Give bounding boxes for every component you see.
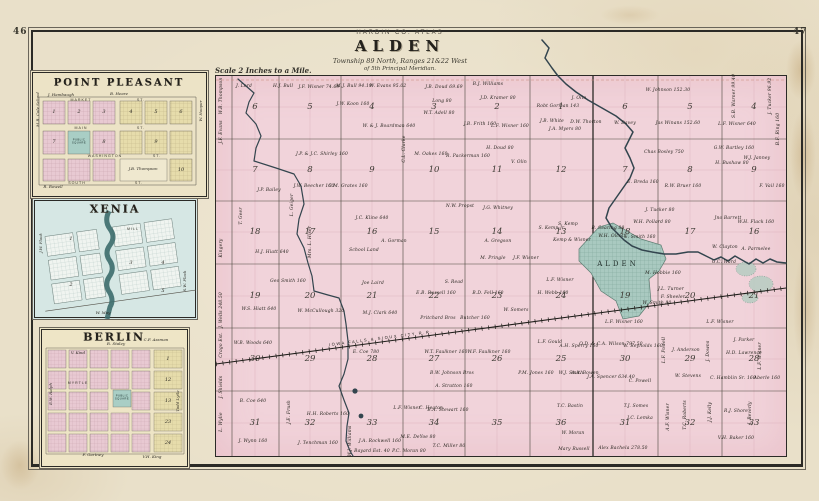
section-number: 5 [687, 103, 692, 112]
owner-label: W.F. Faulkner 160 [467, 351, 510, 355]
section-number: 32 [685, 419, 696, 428]
owner-label: J.P. & J.C. Shirley 160 [296, 153, 348, 157]
edge-owner-label: W.B. Thompson [220, 78, 224, 115]
section-number: 33 [367, 419, 378, 428]
owner-label: J.B. Doud 69.69 [425, 86, 463, 90]
owner-label: A.F. Wisner [667, 403, 671, 431]
section-number: 35 [492, 419, 503, 428]
inset-label: MARKET [71, 98, 92, 102]
owner-label: W.B. Woods 640 [234, 342, 272, 346]
inset-label: 3 [129, 260, 132, 266]
inset-label: W. Hooper [199, 100, 203, 121]
owner-label: L. Geiger [291, 194, 295, 217]
inset-label: ST. [153, 154, 161, 158]
owner-label: L.F. Wisner 640 [718, 123, 756, 127]
inset-labels-layer: C.F. AssmanR. StaleyV. KindE.W. RalphTod… [40, 328, 189, 468]
section-number: 10 [429, 166, 440, 175]
section-number: 3 [431, 103, 436, 112]
owner-label: W. Smith 80 [643, 302, 672, 306]
owner-label: G.C. Ward [712, 261, 736, 265]
section-number: 4 [751, 103, 756, 112]
owner-label: J. Tucker 96.92 [769, 78, 773, 115]
section-number: 22 [429, 292, 440, 301]
inset-label: MYRTLE [68, 381, 89, 385]
owner-label: A. Gorman [381, 240, 407, 244]
paper-stain [600, 5, 660, 25]
owner-label: J. Lord [236, 85, 252, 89]
inset-label: 1 [166, 356, 169, 362]
owner-label: L.F. Wisner 160 [491, 125, 529, 129]
section-number: 36 [556, 419, 567, 428]
inset-label: 10 [178, 167, 184, 173]
owner-label: A. Gregson [485, 240, 512, 244]
owner-label: J.B. White [540, 120, 564, 124]
edge-owner-label: Crago Est. [220, 332, 224, 358]
owner-label: G.W. Bartley 160 [714, 147, 754, 151]
owner-label: R.J. Shore [724, 410, 748, 414]
owner-label: Pritchard Bros [420, 317, 455, 321]
owner-label: W. Johnson 152.30 [646, 89, 690, 93]
owner-label: L.F. Wisner [393, 407, 420, 411]
inset-labels-layer: J.W. FlackW. MayS.W. FlackMILL12345 [33, 199, 197, 319]
owner-label: M.J. Clark 640 [363, 312, 398, 316]
edge-owner-label: Kingery [220, 239, 224, 258]
section-number: 13 [556, 228, 567, 237]
owner-label: L.F. Wisner [706, 321, 733, 325]
owner-label: L.F. Wisner 160 [605, 321, 643, 325]
owner-label: W.S. Hiatt 640 [242, 308, 277, 312]
meridian-line: of 5th Principal Meridian. [300, 66, 500, 72]
owner-label: W. Stevens [675, 375, 701, 379]
township-line: Township 89 North, Ranges 21&22 West [300, 57, 500, 65]
owner-label: Butcher 160 [460, 317, 490, 321]
owner-label: W. & J. Boardman 640 [363, 125, 416, 129]
inset-label: 6 [179, 109, 182, 115]
section-number: 6 [622, 103, 627, 112]
owner-label: B.J. Williams [473, 83, 504, 87]
owner-label: J. Parker [734, 339, 755, 343]
owner-label: J.F. Wisner 74.69 [299, 86, 340, 90]
section-number: 7 [252, 166, 257, 175]
section-number: 19 [250, 292, 261, 301]
owner-label: J. Tenchman 160 [298, 442, 338, 446]
owner-label: H.J. Bull [273, 85, 293, 89]
owner-label: E. Breda 160 [627, 181, 659, 185]
township-map: ALDEN IOWA FALLS & SIOUX CITY R.R. J. Lo… [215, 75, 787, 457]
section-number: 1 [558, 103, 563, 112]
section-number: 23 [492, 292, 503, 301]
owner-label: W.J. Janney [744, 157, 771, 161]
inset-label: Todd Lytle [176, 390, 180, 411]
edge-owner-label: J. Wells 248.50 [220, 292, 224, 328]
owner-label: B.F. Ring 160 [777, 113, 781, 146]
owner-label: V. Olin [511, 161, 527, 165]
title-block: HARDIN CO. ATLAS ALDEN Township 89 North… [300, 30, 500, 72]
section-number: 4 [369, 103, 374, 112]
inset-label: 23 [165, 419, 171, 425]
map-title: ALDEN [300, 37, 500, 55]
inset-label: 13 [165, 398, 171, 404]
owner-label: J.A. Spencer 634.40 [587, 376, 635, 380]
owner-label: B.W. Johnson Bros [430, 372, 474, 376]
inset-label: 2 [69, 282, 72, 288]
owner-label: J.L. Turner [658, 288, 684, 292]
owner-label: Alex Bachela 278.50 [598, 447, 647, 451]
section-number: 2 [494, 103, 499, 112]
section-number: 17 [685, 228, 696, 237]
owner-label: S.B. Warner 99.40 [733, 74, 737, 118]
owner-label: A.A. Bowen [571, 372, 599, 376]
owner-label: J. Anderson [672, 349, 700, 353]
section-number: 31 [250, 419, 261, 428]
section-number: 20 [305, 292, 316, 301]
owner-label: C.L. Clarke [403, 135, 407, 162]
owner-label: F. Vail 160 [759, 185, 784, 189]
owner-label: P.M. Jones 160 [518, 372, 553, 376]
owner-label: M. Pringle [480, 257, 505, 261]
owner-label: B.A. Stewart 160 [427, 409, 468, 413]
owner-label: W. McCullough 320 [298, 310, 345, 314]
section-number: 18 [620, 228, 631, 237]
section-number: 19 [620, 292, 631, 301]
owner-label: A. Stratton 160 [435, 385, 472, 389]
owner-label: W. Moran [562, 432, 585, 436]
map-labels-layer: J. LordH.J. BullJ.F. Wisner 74.69M.J. Bu… [216, 76, 786, 456]
section-number: 29 [685, 355, 696, 364]
inset-label: ST. [137, 98, 145, 102]
edge-owner-label: J. Shields [220, 376, 224, 399]
inset-label: W. May [96, 311, 111, 315]
inset-label: J.B. Thompson [128, 167, 157, 171]
section-number: 20 [685, 292, 696, 301]
owner-label: J.W. Koon 160 [336, 103, 369, 107]
atlas-page: 46 47 HARDIN CO. ATLAS ALDEN Township 89… [0, 0, 819, 501]
section-number: 8 [307, 166, 312, 175]
section-number: 18 [250, 228, 261, 237]
section-number: 16 [367, 228, 378, 237]
owner-label: W.J. Williams [349, 425, 353, 456]
inset-label: 24 [165, 440, 171, 446]
inset-label: SOUTH [68, 181, 86, 185]
inset-label: 5 [161, 288, 164, 294]
owner-label: D.W. Thorton [570, 121, 601, 125]
owner-label: J. Olin [572, 97, 587, 101]
owner-label: Bayard Est. 40 [354, 450, 390, 454]
section-number: 21 [367, 292, 378, 301]
owner-label: Geo Smith 160 [270, 280, 306, 284]
owner-label: J.E. Frush [288, 400, 292, 424]
owner-label: N.W. Propst [446, 205, 474, 209]
owner-label: W. Evans 95.02 [370, 85, 407, 89]
section-number: 12 [556, 166, 567, 175]
owner-label: W. Reynolds 160 [623, 345, 663, 349]
section-number: 15 [429, 228, 440, 237]
owner-label: H. Bushaw 80 [715, 162, 749, 166]
owner-label: J.C. Lemka [627, 417, 653, 421]
owner-label: J.G. Whitney [483, 207, 513, 211]
owner-label: J.F. Wisner [513, 257, 539, 261]
owner-label: S. Read [445, 281, 463, 285]
inset-label: J. Hambaugh [48, 93, 74, 97]
inset-point-pleasant: POINT PLEASANT PUBLIC SQUARE J. Hambaugh… [30, 70, 209, 199]
inset-label: B. Heare [110, 92, 128, 96]
owner-label: M. Hobbie 160 [645, 272, 681, 276]
owner-label: H. Doud 80 [486, 147, 513, 151]
page-number-left: 46 [13, 27, 28, 37]
edge-owner-label: L. Wylie [220, 412, 224, 432]
owner-label: C. Powell [629, 380, 651, 384]
owner-label: J.C. Kline 640 [356, 217, 389, 221]
inset-label: WASHINGTON [88, 154, 123, 158]
section-number: 7 [622, 166, 627, 175]
owner-label: Chas Bosley 750 [644, 151, 684, 155]
section-number: 17 [305, 228, 316, 237]
owner-label: M. Oakes 160 [414, 153, 447, 157]
section-number: 33 [749, 419, 760, 428]
inset-labels-layer: J. HambaughB. HeareR. RowellM.B. ColeSch… [31, 71, 208, 198]
owner-label: L.F. Wisner [546, 279, 573, 283]
inset-label: F. Gartney [83, 453, 104, 457]
owner-label: A. Parmelee [742, 248, 771, 252]
inset-label: ST. [135, 181, 143, 185]
owner-label: M.E. DeYoe 80 [400, 436, 435, 440]
inset-label: 9 [154, 139, 157, 145]
inset-label: V. Kind [71, 351, 85, 355]
section-number: 25 [556, 355, 567, 364]
section-number: 27 [429, 355, 440, 364]
section-number: 28 [367, 355, 378, 364]
inset-label: R. Staley [107, 342, 125, 346]
inset-label: 5 [154, 109, 157, 115]
owner-label: School Land [349, 249, 379, 253]
owner-label: T.J. Somes [624, 405, 649, 409]
owner-label: J.J. Kelly [709, 402, 713, 422]
owner-label: Kemp & Wisner [553, 239, 591, 243]
inset-label: 1 [52, 109, 55, 115]
inset-label: MAIN [75, 126, 88, 130]
inset-label: ST. [137, 126, 145, 130]
owner-label: J. Tucker 80 [645, 209, 674, 213]
inset-label: 4 [129, 109, 132, 115]
page-number-right: 47 [793, 27, 808, 37]
atlas-name: HARDIN CO. ATLAS [300, 30, 500, 36]
owner-label: H.H. Roberts 160 [307, 413, 349, 417]
inset-label: MILL [127, 227, 139, 231]
inset-label: 2 [77, 109, 80, 115]
owner-label: T.C. Bastin [557, 405, 583, 409]
owner-label: W. Davey [614, 122, 636, 126]
section-number: 9 [369, 166, 374, 175]
inset-berlin: BERLIN PUBLIC SQUARE C.F. AssmanR. Stale… [39, 327, 190, 469]
inset-label: 3 [102, 109, 105, 115]
section-number: 21 [749, 292, 760, 301]
owner-label: W.H. Flack 160 [738, 221, 775, 225]
owner-label: J.A. Rockwell 160 [359, 440, 401, 444]
owner-label: T.C. Miller 80 [433, 445, 466, 449]
inset-label: 12 [165, 377, 171, 383]
section-number: 6 [252, 103, 257, 112]
inset-label: R. Rowell [43, 185, 62, 189]
inset-label: M.B. Cole [36, 107, 40, 127]
section-number: 34 [429, 419, 440, 428]
owner-label: W. Somers [503, 309, 528, 313]
owner-label: J. Wynn 160 [239, 440, 268, 444]
edge-owner-label: J.F. Evans [220, 120, 224, 143]
section-number: 28 [749, 355, 760, 364]
owner-label: J. Downs [707, 341, 711, 362]
section-number: 9 [751, 166, 756, 175]
owner-label: M.J. Bull 94.19 [336, 85, 372, 89]
section-number: 16 [749, 228, 760, 237]
owner-label: Joe Laird [362, 282, 384, 286]
inset-label: 8 [102, 139, 105, 145]
section-number: 32 [305, 419, 316, 428]
owner-label: C. Hamblin Sr. 160 [710, 377, 756, 381]
owner-label: P.C. Moran 80 [392, 450, 426, 454]
section-number: 30 [620, 355, 631, 364]
inset-label: S.W. Flack [183, 271, 187, 292]
inset-label: J.W. Flack [39, 233, 43, 253]
owner-label: W.T. Adell 80 [423, 112, 454, 116]
inset-label: 7 [52, 139, 55, 145]
section-number: 29 [305, 355, 316, 364]
owner-label: V.H. Baker 160 [718, 437, 754, 441]
owner-label: H.J. Hiatt 640 [255, 251, 288, 255]
inset-label: V.H. King [143, 455, 162, 459]
inset-label: C.F. Assman [144, 338, 169, 342]
section-number: 5 [307, 103, 312, 112]
section-number: 14 [492, 228, 503, 237]
owner-label: Mary Russell [558, 448, 590, 452]
owner-label: F. Sheeler [661, 296, 685, 300]
owner-label: Aberle 160 [754, 377, 780, 381]
section-number: 26 [492, 355, 503, 364]
owner-label: R. Packerman 160 [446, 155, 490, 159]
owner-label: L.F. Powell [663, 337, 667, 363]
section-number: 24 [556, 292, 567, 301]
section-number: 31 [620, 419, 631, 428]
owner-label: W. Clayton [712, 246, 738, 250]
section-number: 11 [492, 166, 503, 175]
owner-label: Jas Winans 152.60 [656, 122, 701, 126]
owner-label: R.W. Bruer 160 [665, 185, 702, 189]
section-number: 8 [687, 166, 692, 175]
inset-xenia: XENIA J.W. FlackW. MayS.W. FlackMILL1234… [32, 198, 198, 320]
owner-label: W.H. Pollard 80 [633, 221, 671, 225]
inset-label: 1 [69, 236, 72, 242]
inset-label: School [36, 92, 40, 106]
inset-label: E.W. Ralph [49, 383, 53, 405]
owner-label: J.D. Kramer 80 [480, 97, 516, 101]
owner-label: B. Coe 640 [240, 400, 266, 404]
owner-label: J.P. Bailey [257, 189, 281, 193]
owner-label: J.A. Myers 80 [549, 128, 581, 132]
owner-label: T. Geer [240, 207, 244, 224]
owner-label: C.M. Grates 160 [328, 185, 368, 189]
section-number: 30 [250, 355, 261, 364]
inset-label: 4 [161, 260, 164, 266]
